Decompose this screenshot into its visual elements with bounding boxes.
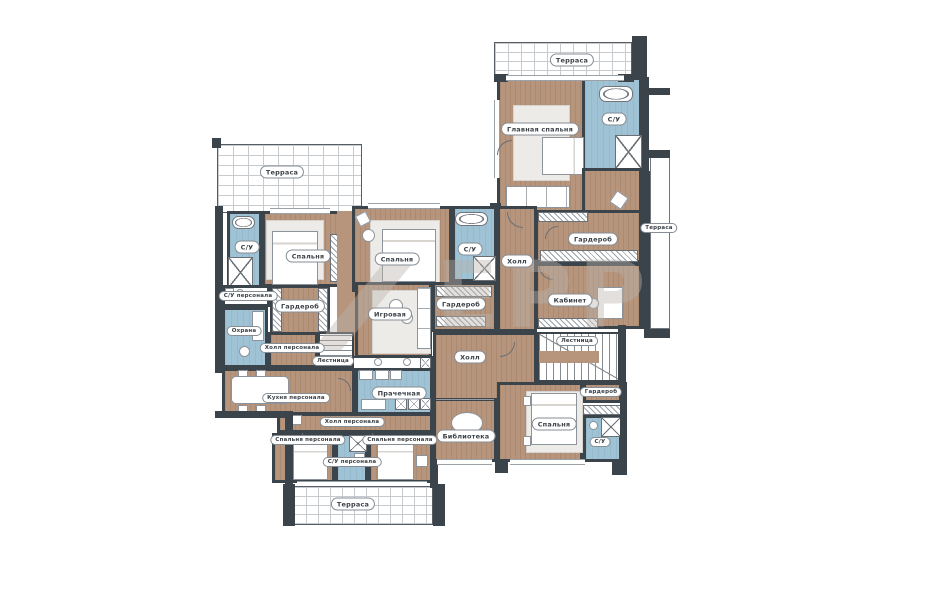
room-label-stairs-right: Лестница — [556, 336, 598, 346]
room-label-kabinet: Кабинет — [548, 294, 593, 307]
room-label-stairs-left: Лестница — [312, 356, 354, 366]
sofa-icon — [417, 287, 431, 349]
room-label-su-left: С/У — [235, 241, 260, 254]
room-label-su-bottom-right: С/У — [590, 437, 611, 447]
watermark-text: ЕРР — [436, 250, 652, 342]
room-label-bedroom-mid: Спальня — [375, 253, 420, 266]
room-label-staff-bedroom-right: Спальня персонала — [362, 435, 437, 445]
nightstand-icon — [416, 455, 428, 467]
stair-landing-area — [539, 351, 599, 363]
room-label-hall-top: Холл — [501, 255, 533, 268]
window — [437, 459, 492, 465]
chair-icon — [256, 370, 266, 377]
wall — [215, 411, 293, 418]
bathtub-icon — [599, 86, 633, 102]
room-label-hall-staff-bottom: Холл персонала — [320, 417, 385, 427]
room-label-master-bedroom: Главная спальня — [501, 123, 579, 136]
wall — [495, 462, 508, 473]
room-label-ohrana: Охрана — [227, 326, 262, 336]
room-label-wardrobe-right: Гардероб — [568, 233, 618, 246]
divider-line — [436, 399, 494, 400]
room-label-terrace-top-right: Терраса — [550, 54, 594, 67]
room-label-bedroom-bottom-right: Спальня — [532, 418, 577, 431]
nightstand-icon — [523, 436, 531, 446]
window — [270, 208, 330, 214]
appliance-icon — [359, 370, 373, 380]
room-label-laundry: Прачечная — [372, 387, 427, 400]
shower-icon — [615, 135, 642, 169]
window — [494, 100, 500, 178]
room-label-su-staff-bottom: С/У персонала — [323, 457, 382, 467]
wall — [215, 206, 223, 373]
chair-icon — [239, 346, 250, 357]
room-label-su-mid: С/У — [458, 243, 483, 256]
washer-icon — [361, 399, 386, 410]
wall — [632, 36, 647, 77]
washer-icon — [420, 398, 431, 410]
room-label-wardrobe-left: Гардероб — [275, 300, 325, 313]
wall — [433, 484, 445, 526]
room-label-terrace-bottom: Терраса — [331, 498, 375, 511]
washer-icon — [408, 398, 420, 410]
bed-icon — [377, 443, 414, 480]
shower-icon — [228, 257, 253, 288]
bathtub-icon — [232, 216, 255, 229]
wall — [644, 150, 670, 158]
closet-hatch-icon — [583, 405, 622, 415]
room-label-su-master: С/У — [602, 113, 627, 126]
sofa-icon — [506, 186, 570, 208]
wall — [612, 462, 627, 475]
room-label-bedroom-left: Спальня — [286, 250, 331, 263]
room-label-terrace-left: Терраса — [260, 166, 304, 179]
room-label-su-staff-left: С/У персонала — [219, 291, 278, 301]
wall — [283, 484, 295, 526]
nightstand-icon — [523, 396, 531, 406]
closet-hatch-icon — [538, 212, 588, 222]
window — [510, 459, 585, 465]
washer-icon — [395, 398, 407, 410]
terrace-right-area — [650, 157, 670, 329]
sink-icon — [589, 421, 598, 430]
terrace-left-area — [217, 144, 362, 213]
wall — [285, 411, 293, 486]
room-label-kitchen-staff: Кухня персонала — [262, 393, 330, 403]
appliance-icon — [375, 370, 389, 380]
room-label-library: Библиотека — [437, 430, 496, 443]
room-label-terrace-right: Терраса — [640, 223, 677, 233]
wardrobe-right-upper-area — [582, 168, 642, 216]
room-label-staff-bedroom-left: Спальня персонала — [270, 435, 345, 445]
room-label-hall-central: Холл — [454, 351, 486, 364]
chair-icon — [362, 229, 375, 242]
shower-icon — [601, 417, 621, 437]
bathtub-icon — [455, 212, 488, 226]
wall — [212, 138, 221, 148]
window — [506, 75, 624, 81]
bed-icon — [542, 137, 584, 175]
appliance-icon — [390, 370, 402, 380]
sink-icon — [374, 358, 382, 366]
wall — [648, 88, 670, 95]
room-label-wardrobe-mid: Гардероб — [436, 298, 486, 311]
room-label-playroom: Игровая — [368, 308, 412, 321]
room-label-wardrobe-bottom-right: Гардероб — [580, 387, 622, 397]
chair-icon — [238, 370, 248, 377]
window — [368, 203, 440, 209]
sink-icon — [403, 358, 411, 366]
room-label-hall-staff-top: Холл персонала — [260, 343, 325, 353]
floor-plan: ЕРР ТеррасаС/УГлавная спальняТеррасаТерр… — [0, 0, 926, 606]
